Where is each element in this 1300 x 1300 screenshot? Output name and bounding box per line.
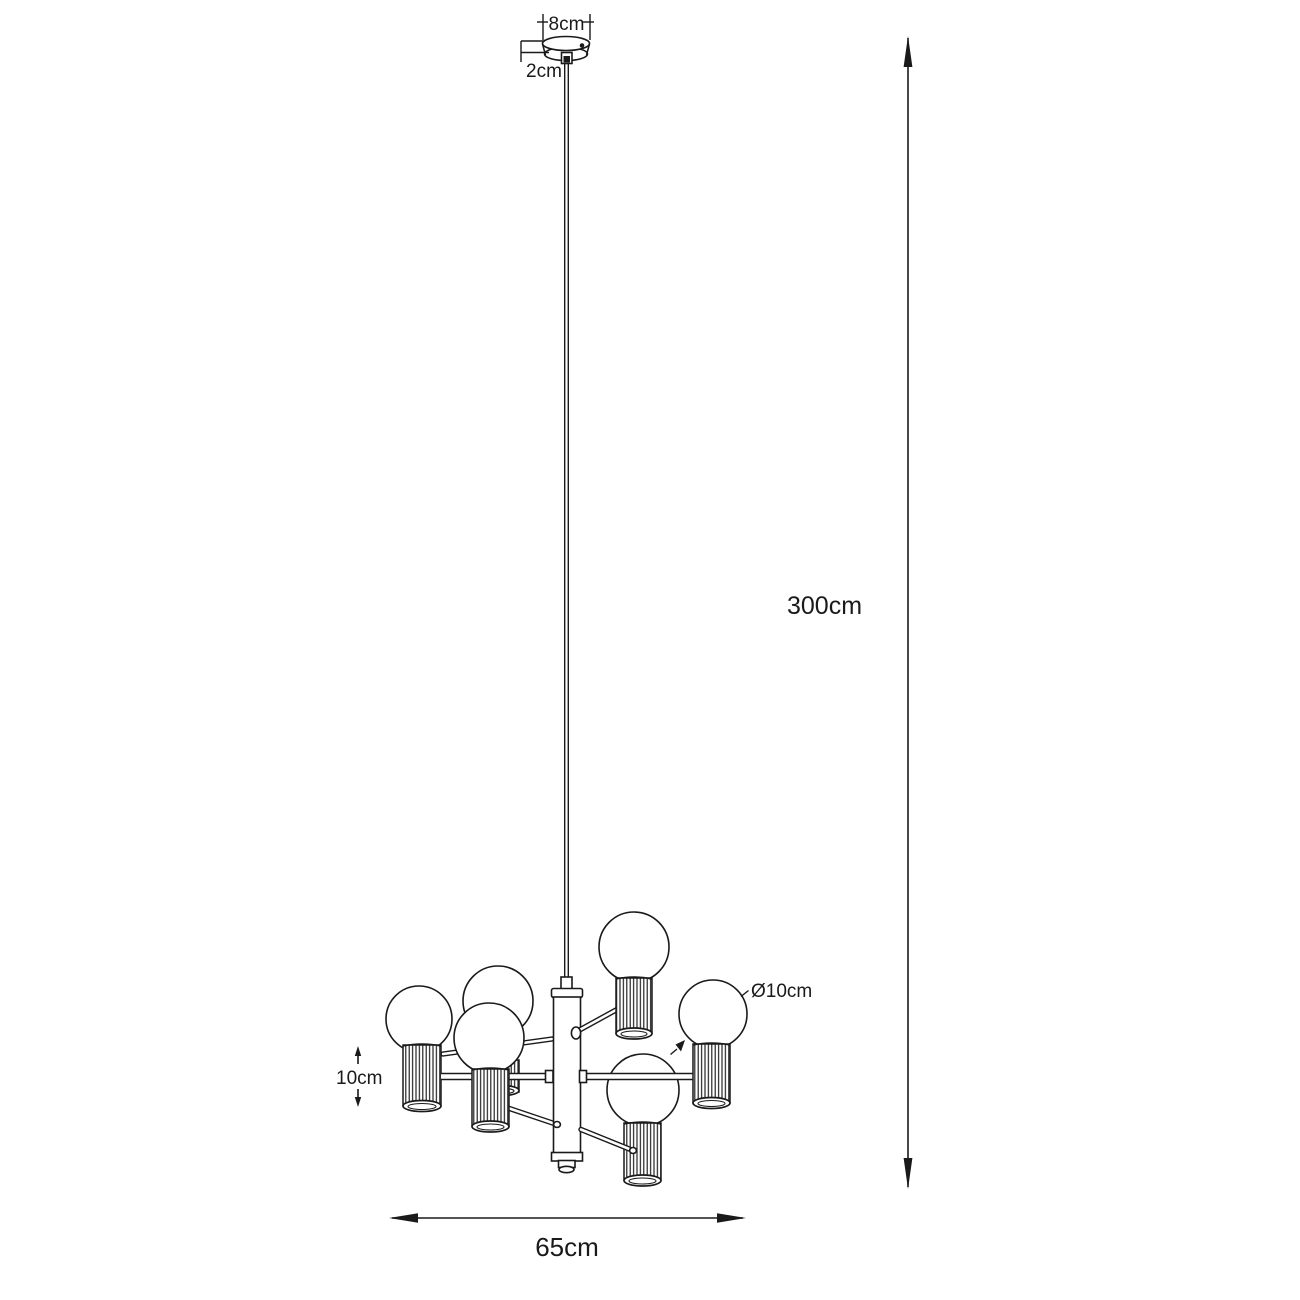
bar-hub-right — [580, 1071, 587, 1083]
dimension-fixture-width: 65cm — [389, 1213, 746, 1262]
canopy-width-label: 8cm — [549, 14, 585, 35]
arrow-left-icon — [389, 1213, 418, 1223]
arm-lower-left — [508, 1108, 557, 1125]
arrow-right-icon — [717, 1213, 746, 1223]
suspension-height-label: 300cm — [787, 592, 862, 620]
canopy-height-label: 2cm — [526, 61, 562, 82]
arrow-down-icon — [904, 1158, 913, 1189]
lamp-shade — [693, 1044, 730, 1103]
lamp-shade — [472, 1069, 509, 1126]
arrow-up-icon — [904, 36, 913, 67]
lamp-unit-far-left — [386, 986, 452, 1112]
lamp-unit-right — [679, 980, 747, 1109]
shade-height-label: 10cm — [336, 1068, 382, 1089]
fixture-width-label: 65cm — [535, 1232, 599, 1262]
bulb-globe — [599, 912, 669, 982]
wire-connector — [561, 977, 572, 990]
cable-grip-core — [564, 56, 571, 63]
arrow-up-small-icon — [355, 1046, 361, 1056]
central-column — [552, 989, 583, 1173]
arrow-down-small-icon — [355, 1097, 361, 1107]
arm-pivot-washer — [571, 1027, 580, 1039]
bulb-globe-bottom — [607, 1054, 679, 1126]
canopy-screw — [580, 43, 585, 48]
lamp-shade — [403, 1045, 441, 1106]
dimension-suspension-height: 300cm — [787, 36, 912, 1189]
column-knob-tip — [559, 1166, 574, 1172]
chandelier-dimension-drawing: 8cm 2cm 300cm 65cm 10 — [0, 0, 1300, 1300]
bulb-diameter-label: Ø10cm — [751, 981, 812, 1002]
lamp-unit-bottom — [624, 1122, 661, 1186]
arm-lower-left-cap — [554, 1122, 561, 1128]
ceiling-canopy — [543, 37, 590, 64]
bulb-globe — [454, 1003, 524, 1073]
lamp-unit-top-right — [599, 912, 669, 1039]
bar-hub-left — [546, 1071, 554, 1083]
chandelier-drawing — [386, 37, 747, 1187]
column-cap — [552, 989, 583, 998]
suspension-rod — [561, 62, 572, 990]
bulb-globe — [386, 986, 452, 1052]
column-body — [554, 997, 581, 1153]
dimension-shade-height: 10cm — [336, 1046, 382, 1107]
dimension-diagram: 8cm 2cm 300cm 65cm 10 — [0, 0, 1300, 1300]
arm-lower-right-cap — [630, 1148, 637, 1154]
bulb-globe — [679, 980, 747, 1048]
lamp-shade — [616, 978, 652, 1033]
